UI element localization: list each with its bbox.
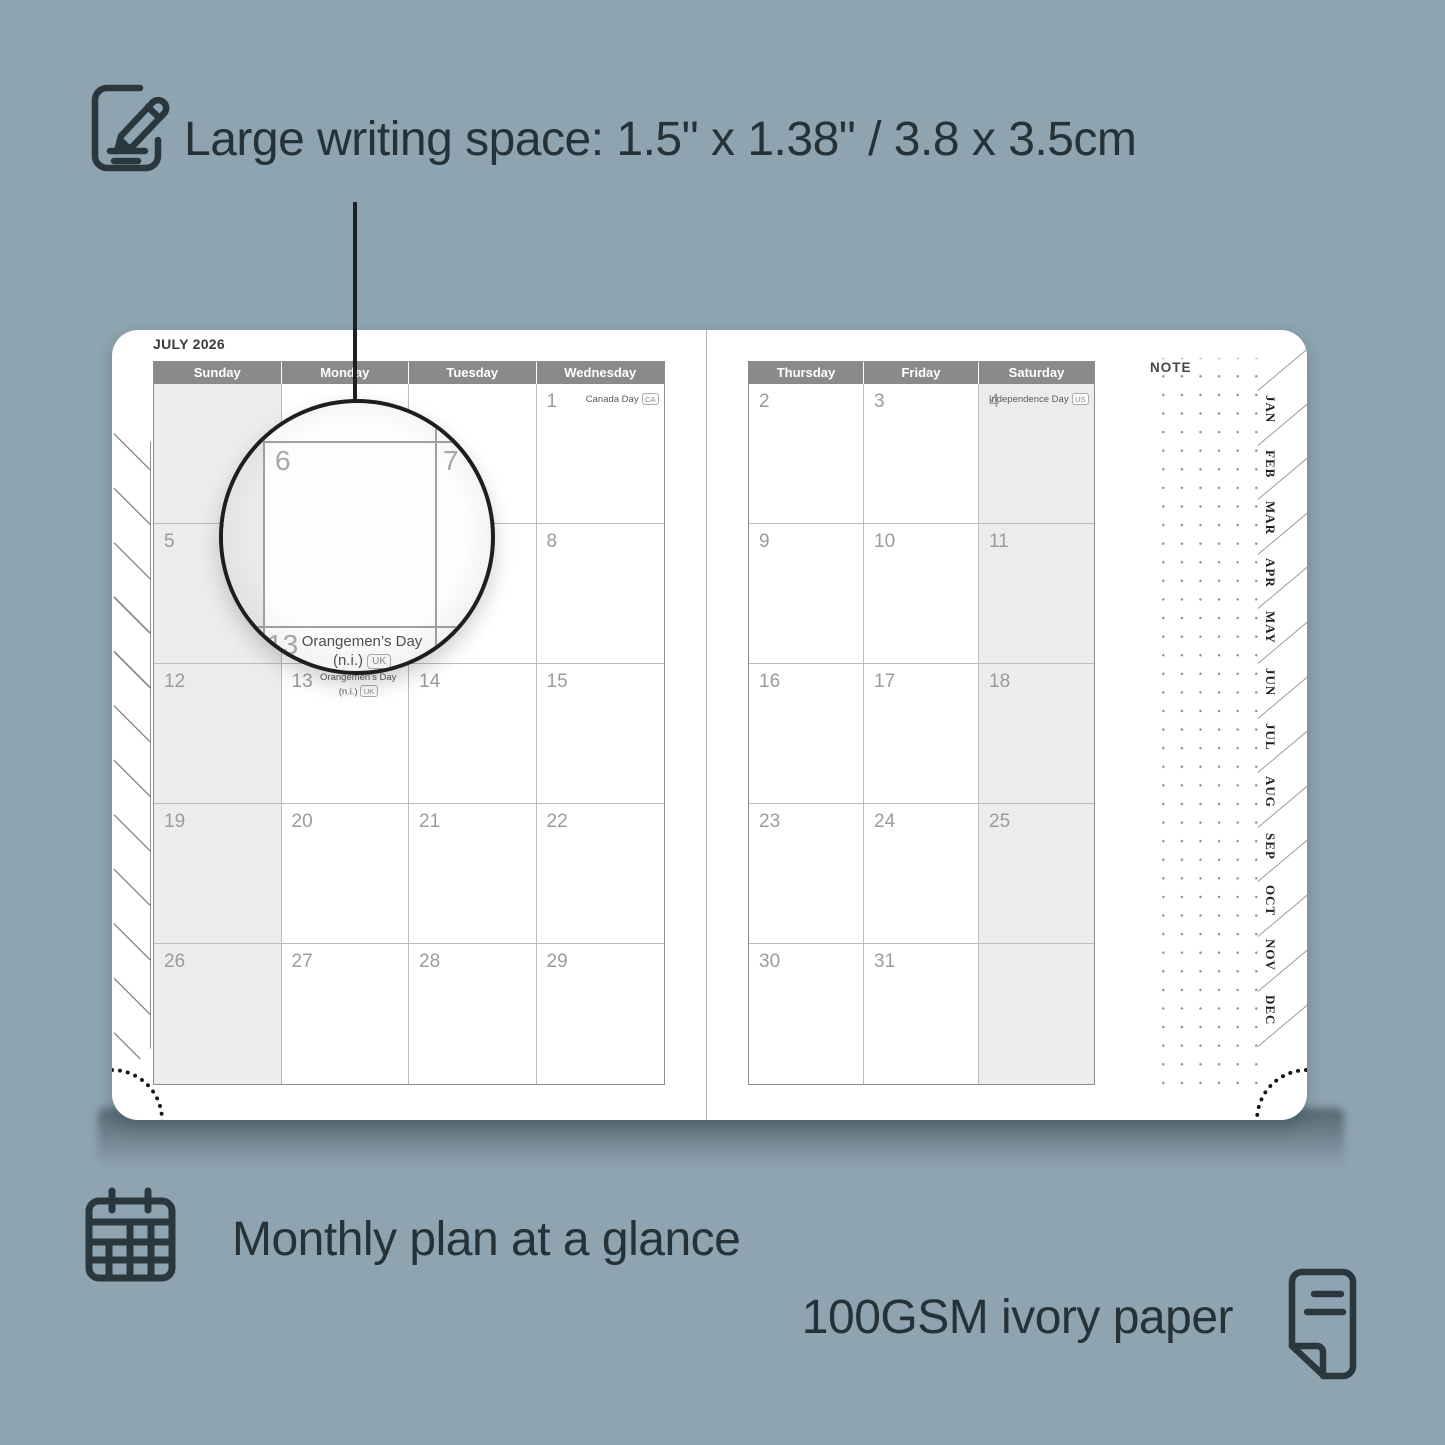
- date-number: [979, 944, 1094, 951]
- calendar-cell: 20: [282, 804, 410, 944]
- calendar-cell: 26: [154, 944, 282, 1084]
- date-number: 8: [537, 524, 665, 553]
- calendar-cell: 11: [979, 524, 1094, 664]
- cell-jul-13: 13 Orangemen’s Day (n.i.) UK: [282, 664, 410, 804]
- date-number: 16: [749, 664, 863, 693]
- date-number: 23: [749, 804, 863, 833]
- calendar-cell: 15: [537, 664, 665, 804]
- note-label: NOTE: [1150, 360, 1197, 375]
- day-header-wednesday: Wednesday: [537, 362, 665, 384]
- calendar-cell: 27: [282, 944, 410, 1084]
- right-page-grid: Thursday Friday Saturday 2 3 4 Independe…: [748, 361, 1095, 1085]
- calendar-grid-icon: [80, 1186, 180, 1286]
- date-number: 27: [282, 944, 409, 973]
- day-header-friday: Friday: [864, 362, 979, 384]
- day-header-saturday: Saturday: [979, 362, 1094, 384]
- date-number: 28: [409, 944, 536, 973]
- magnifier-circle: 6 7 13 Orangemen’s Day (n.i.) UK: [219, 399, 495, 675]
- holiday-label: Orangemen’s Day (n.i.) UK: [312, 671, 406, 700]
- date-number: 20: [282, 804, 409, 833]
- calendar-cell: 23: [749, 804, 864, 944]
- cell-jul-1: 1 Canada DayCA: [537, 384, 665, 524]
- country-badge: CA: [642, 393, 659, 405]
- date-number: 10: [864, 524, 978, 553]
- month-title: JULY 2026: [153, 336, 225, 352]
- date-number: 2: [749, 384, 863, 413]
- calendar-cell: [979, 944, 1094, 1084]
- date-number: 29: [537, 944, 665, 973]
- date-number: 30: [749, 944, 863, 973]
- calendar-cell: 2: [749, 384, 864, 524]
- date-number: 21: [409, 804, 536, 833]
- tab-dec: DEC: [1262, 983, 1278, 1038]
- page-edge-hatching: [114, 404, 151, 1086]
- calendar-cell: 17: [864, 664, 979, 804]
- day-header-monday: Monday: [282, 362, 410, 384]
- holiday-label: Independence DayUS: [989, 393, 1089, 405]
- calendar-cell: 3: [864, 384, 979, 524]
- feature-monthly-plan: Monthly plan at a glance: [232, 1212, 740, 1267]
- calendar-cell: 21: [409, 804, 537, 944]
- calendar-cell: 31: [864, 944, 979, 1084]
- date-number: 9: [749, 524, 863, 553]
- calendar-cell: 16: [749, 664, 864, 804]
- feature-writing-space: Large writing space: 1.5" x 1.38" / 3.8 …: [184, 112, 1136, 167]
- note-dot-grid: [1148, 358, 1264, 1086]
- calendar-cell: 28: [409, 944, 537, 1084]
- cell-jul-4: 4 Independence DayUS: [979, 384, 1094, 524]
- calendar-cell: 19: [154, 804, 282, 944]
- calendar-cell: 29: [537, 944, 665, 1084]
- calendar-cell: 9: [749, 524, 864, 664]
- date-number: [282, 384, 409, 391]
- calendar-cell: 22: [537, 804, 665, 944]
- calendar-cell: 24: [864, 804, 979, 944]
- date-number: 17: [864, 664, 978, 693]
- calendar-cell: 8: [537, 524, 665, 664]
- magnifier-connector-line: [353, 202, 357, 404]
- feature-paper: 100GSM ivory paper: [802, 1290, 1233, 1345]
- date-number: 26: [154, 944, 281, 973]
- notepad-pencil-icon: [84, 78, 180, 178]
- calendar-cell: 14: [409, 664, 537, 804]
- day-header-sunday: Sunday: [154, 362, 282, 384]
- date-number: 31: [864, 944, 978, 973]
- calendar-cell: 18: [979, 664, 1094, 804]
- country-badge: US: [1072, 393, 1089, 405]
- date-number: 11: [979, 524, 1094, 553]
- page-spine: [706, 330, 707, 1120]
- calendar-cell: 30: [749, 944, 864, 1084]
- paper-sheet-icon: [1279, 1264, 1361, 1388]
- date-number: 24: [864, 804, 978, 833]
- day-header-tuesday: Tuesday: [409, 362, 537, 384]
- date-number: 3: [864, 384, 978, 413]
- month-tabs: JAN FEB MAR APR MAY JUN JUL AUG SEP OCT …: [1262, 382, 1307, 1038]
- magnifier-vignette: [223, 403, 491, 671]
- holiday-label: Canada DayCA: [586, 393, 659, 405]
- country-badge: UK: [360, 685, 377, 697]
- date-number: 18: [979, 664, 1094, 693]
- date-number: 22: [537, 804, 665, 833]
- calendar-cell: 25: [979, 804, 1094, 944]
- date-number: 15: [537, 664, 665, 693]
- day-header-thursday: Thursday: [749, 362, 864, 384]
- calendar-cell: 12: [154, 664, 282, 804]
- date-number: 25: [979, 804, 1094, 833]
- date-number: [409, 384, 536, 391]
- date-number: [154, 384, 281, 391]
- date-number: 19: [154, 804, 281, 833]
- calendar-cell: 10: [864, 524, 979, 664]
